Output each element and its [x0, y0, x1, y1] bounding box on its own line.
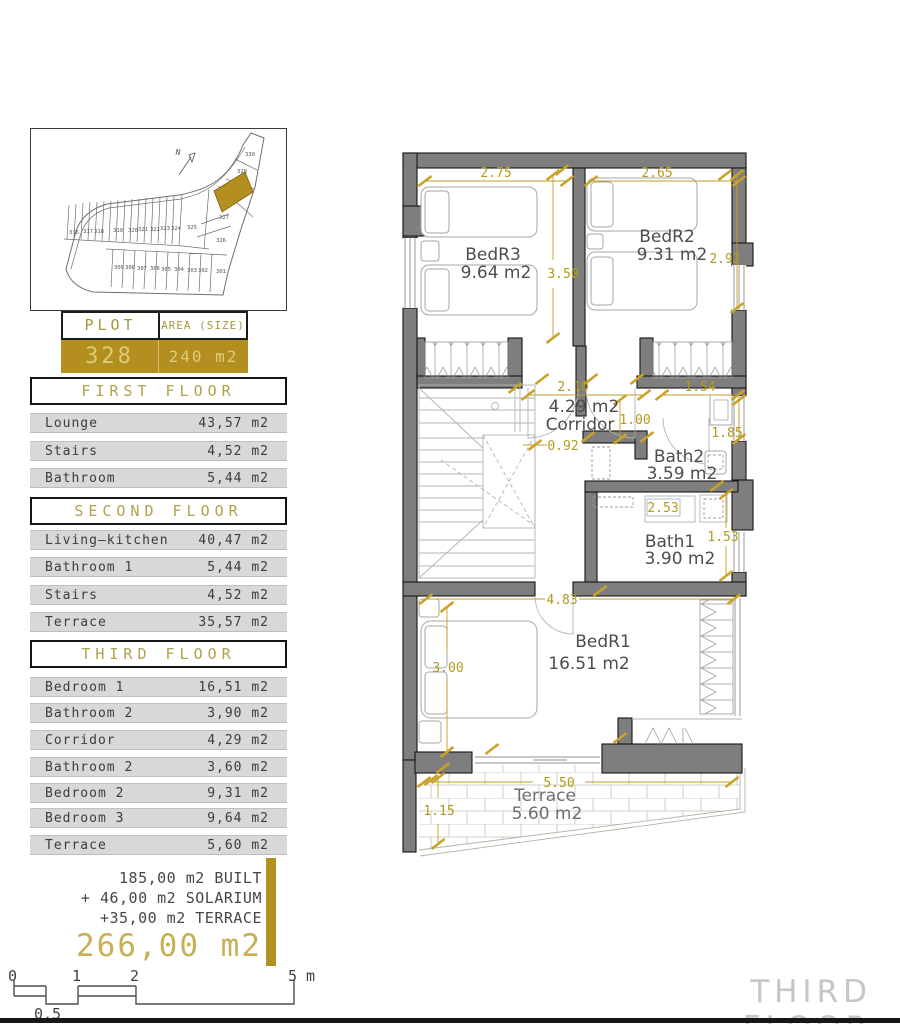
north-arrow: N: [175, 148, 195, 175]
row-value: 16,51 m2: [198, 678, 269, 697]
table-row: Stairs4,52 m2: [30, 441, 287, 461]
scale-bar-line: [14, 980, 294, 1004]
row-value: 5,44 m2: [207, 469, 269, 488]
row-label: Stairs: [45, 586, 98, 605]
svg-text:329: 329: [237, 169, 247, 175]
table-row: Terrace35,57 m2: [30, 612, 287, 632]
table-row: Bathroom 23,60 m2: [30, 757, 287, 777]
pillow: [591, 182, 613, 227]
nightstand: [587, 234, 603, 249]
row-label: Stairs: [45, 442, 98, 461]
row-label: Bathroom 2: [45, 704, 133, 723]
wardrobe-bedr3: [425, 342, 508, 378]
wardrobe-bedr2: [653, 342, 732, 378]
plot-table-header: PLOT AREA (SIZE): [61, 311, 248, 340]
sink: [710, 395, 732, 425]
row-value: 3,90 m2: [207, 704, 269, 723]
third-floor-header: THIRD FLOOR: [30, 640, 287, 668]
svg-text:301: 301: [216, 269, 226, 275]
wardrobe-bedr1: [700, 600, 733, 714]
svg-text:317: 317: [83, 229, 93, 235]
third-floor-plan: 2.75 2.65 3.50 2.92 2.10 1.54 1.00 0.92 …: [395, 148, 765, 872]
shelf-bath1: [593, 497, 633, 507]
svg-text:325: 325: [187, 225, 197, 231]
label-terrace-name: Terrace: [513, 786, 576, 806]
plot-table: PLOT AREA (SIZE) 328 240 m2: [61, 311, 248, 373]
svg-text:303: 303: [187, 268, 197, 274]
scale-bar: 0 1 2 5 m 0,5: [6, 968, 328, 1024]
page-title: THIRD FLOOR: [600, 974, 872, 1024]
stairs: [419, 385, 535, 578]
site-plan-drawing: N 330 329 327 326 325 316 317 318 319 32…: [31, 129, 286, 310]
svg-text:N: N: [175, 148, 181, 157]
label-terrace-area: 5.60 m2: [512, 804, 583, 824]
dim-terrace-depth: 1.15: [423, 804, 454, 819]
table-row: Bedroom 116,51 m2: [30, 677, 287, 697]
table-row: Living—kitchen40,47 m2: [30, 530, 287, 550]
table-row: Lounge43,57 m2: [30, 413, 287, 433]
summary-terrace: +35,00 m2 TERRACE: [30, 908, 262, 928]
svg-text:326: 326: [216, 238, 226, 244]
table-row: Bedroom 29,31 m2: [30, 783, 287, 803]
row-value: 5,44 m2: [207, 558, 269, 577]
scale-1: 1: [72, 968, 81, 985]
dim-092: 0.92: [547, 439, 578, 454]
svg-text:305: 305: [161, 267, 171, 273]
dim-bedr2-width: 2.65: [641, 166, 672, 181]
bottom-rule: [0, 1018, 900, 1023]
pillow: [591, 257, 613, 305]
dim-bedr1-width: 4.83: [546, 593, 577, 608]
svg-text:320: 320: [128, 228, 138, 234]
site-plan: N 330 329 327 326 325 316 317 318 319 32…: [30, 128, 287, 311]
dim-bedr1-depth: 3.00: [432, 661, 463, 676]
svg-text:309: 309: [114, 265, 124, 271]
label-bedr3-name: BedR3: [465, 245, 521, 265]
svg-text:327: 327: [219, 215, 229, 221]
shower-bath2: [592, 447, 610, 479]
dim-bedr2-depth: 2.92: [709, 252, 740, 267]
plot-area: 240 m2: [159, 340, 248, 373]
area-summary: 185,00 m2 BUILT + 46,00 m2 SOLARIUM +35,…: [30, 868, 262, 928]
floorplan-page: N 330 329 327 326 325 316 317 318 319 32…: [0, 0, 900, 1024]
dim-154: 1.54: [684, 380, 715, 395]
label-bath2-area: 3.59 m2: [647, 464, 718, 484]
nightstand: [421, 241, 439, 261]
row-label: Terrace: [45, 836, 107, 855]
row-value: 4,29 m2: [207, 731, 269, 750]
dim-185: 1.85: [711, 426, 742, 441]
washer-drum: [704, 499, 723, 518]
svg-text:306: 306: [150, 266, 160, 272]
svg-text:308: 308: [125, 265, 135, 271]
row-label: Bedroom 2: [45, 784, 124, 803]
total-area: 266,00 m2: [30, 928, 262, 964]
row-value: 43,57 m2: [198, 414, 269, 433]
row-value: 5,60 m2: [207, 836, 269, 855]
plot-header-cell: PLOT: [63, 313, 160, 338]
row-label: Corridor: [45, 731, 116, 750]
svg-text:321: 321: [138, 227, 148, 233]
svg-text:330: 330: [245, 152, 255, 158]
second-floor-header: SECOND FLOOR: [30, 497, 287, 525]
summary-built: 185,00 m2 BUILT: [30, 868, 262, 888]
dim-153: 1.53: [707, 530, 738, 545]
row-label: Living—kitchen: [45, 531, 169, 550]
table-row: Bedroom 39,64 m2: [30, 808, 287, 828]
svg-text:302: 302: [198, 268, 208, 274]
row-label: Terrace: [45, 613, 107, 632]
row-label: Lounge: [45, 414, 98, 433]
row-value: 35,57 m2: [198, 613, 269, 632]
svg-text:318: 318: [94, 229, 104, 235]
dim-100: 1.00: [619, 413, 650, 428]
scale-2: 2: [130, 968, 139, 985]
gold-divider-bar: [266, 858, 276, 966]
label-bedr1-name: BedR1: [575, 632, 631, 652]
floor-area-tables: FIRST FLOOR Lounge43,57 m2 Stairs4,52 m2…: [30, 370, 287, 862]
svg-text:322: 322: [150, 227, 160, 233]
plot-table-values: 328 240 m2: [61, 340, 248, 373]
row-value: 9,31 m2: [207, 784, 269, 803]
row-value: 4,52 m2: [207, 442, 269, 461]
table-row: Corridor4,29 m2: [30, 730, 287, 750]
row-value: 3,60 m2: [207, 758, 269, 777]
pillow: [425, 269, 449, 311]
label-bedr2-name: BedR2: [639, 227, 695, 247]
table-row: Bathroom5,44 m2: [30, 468, 287, 488]
label-corridor-area: 4.29 m2: [549, 397, 620, 417]
row-label: Bedroom 3: [45, 809, 124, 828]
table-row: Terrace5,60 m2: [30, 835, 287, 855]
plot-number: 328: [61, 340, 159, 373]
table-row: Stairs4,52 m2: [30, 585, 287, 605]
label-bedr1-area: 16.51 m2: [548, 654, 629, 674]
first-floor-header: FIRST FLOOR: [30, 377, 287, 405]
svg-text:307: 307: [137, 266, 147, 272]
dim-253: 2.53: [647, 501, 678, 516]
row-label: Bathroom: [45, 469, 116, 488]
dim-bedr3-width: 2.75: [480, 166, 511, 181]
pillow: [425, 191, 449, 233]
scale-0: 0: [8, 968, 17, 985]
row-value: 4,52 m2: [207, 586, 269, 605]
closet-hatch: [645, 728, 693, 744]
svg-text:319: 319: [113, 228, 123, 234]
summary-solarium: + 46,00 m2 SOLARIUM: [30, 888, 262, 908]
label-bath1-area: 3.90 m2: [645, 549, 716, 569]
dim-corridor-width: 2.10: [557, 380, 588, 395]
svg-text:316: 316: [69, 230, 79, 236]
label-bedr2-area: 9.31 m2: [637, 245, 708, 265]
label-corridor-name: Corridor: [546, 415, 615, 435]
row-label: Bathroom 1: [45, 558, 133, 577]
dim-bedr3-depth: 3.50: [547, 267, 578, 282]
table-row: Bathroom 15,44 m2: [30, 557, 287, 577]
svg-text:324: 324: [171, 226, 182, 232]
nightstand: [419, 721, 441, 743]
scale-5m: 5 m: [288, 968, 315, 985]
svg-text:304: 304: [174, 267, 185, 273]
label-bedr3-area: 9.64 m2: [461, 263, 532, 283]
row-value: 9,64 m2: [207, 809, 269, 828]
pillow: [425, 672, 447, 714]
svg-text:323: 323: [160, 226, 170, 232]
row-label: Bathroom 2: [45, 758, 133, 777]
area-header-cell: AREA (SIZE): [160, 313, 246, 338]
table-row: Bathroom 23,90 m2: [30, 703, 287, 723]
row-label: Bedroom 1: [45, 678, 124, 697]
row-value: 40,47 m2: [198, 531, 269, 550]
